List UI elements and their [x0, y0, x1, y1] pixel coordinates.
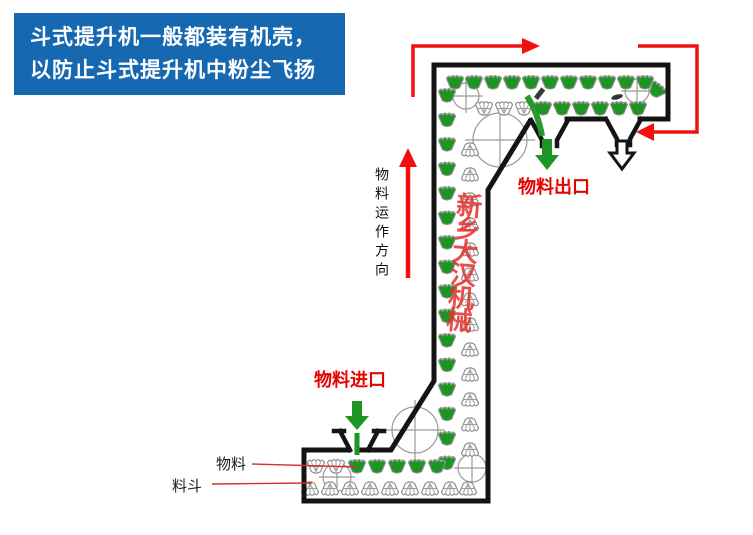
empty-bucket-icon [462, 393, 479, 406]
full-bucket-icon [447, 76, 464, 89]
full-bucket-icon [561, 76, 578, 89]
caption-line-1: 斗式提升机一般都装有机壳， [30, 21, 345, 54]
inlet-arrow-down-icon [345, 401, 369, 430]
full-bucket-icon [592, 102, 609, 115]
full-bucket-icon [439, 432, 456, 445]
material-outlet-label: 物料出口 [518, 173, 590, 199]
full-bucket-icon [466, 76, 483, 89]
empty-bucket-icon [322, 482, 339, 495]
empty-bucket-icon [442, 482, 459, 495]
empty-bucket-icon [462, 443, 479, 456]
material-label: 物料 [216, 453, 246, 474]
empty-bucket-icon [402, 482, 419, 495]
flow-direction-label: 物料运作方向 [372, 167, 392, 292]
bucket-elevator-figure: 斗式提升机一般都装有机壳， 以防止斗式提升机中粉尘飞扬 物料运作方向 新乡大汉机… [0, 0, 753, 535]
empty-bucket-icon [362, 482, 379, 495]
empty-bucket-icon [462, 368, 479, 381]
empty-bucket-icon [462, 418, 479, 431]
full-bucket-icon [439, 89, 456, 102]
material-inlet-label: 物料进口 [314, 366, 386, 392]
full-bucket-icon [630, 102, 647, 115]
empty-bucket-icon [462, 168, 479, 181]
full-bucket-icon [573, 102, 590, 115]
empty-bucket-icon [342, 482, 359, 495]
full-bucket-icon [542, 76, 559, 89]
empty-bucket-icon [422, 482, 439, 495]
full-bucket-icon [439, 383, 456, 396]
full-bucket-icon [409, 460, 426, 473]
full-bucket-icon [439, 358, 456, 371]
bucket-label: 料斗 [172, 475, 202, 496]
empty-bucket-icon [476, 102, 493, 115]
full-bucket-icon [429, 460, 446, 473]
full-bucket-icon [369, 460, 386, 473]
full-bucket-icon [439, 162, 456, 175]
takeup-bolt-mark [611, 93, 624, 101]
full-bucket-icon [439, 407, 456, 420]
stream-clip-mark [534, 87, 545, 100]
empty-bucket-icon [462, 143, 479, 156]
full-bucket-icon [554, 102, 571, 115]
caption-line-2: 以防止斗式提升机中粉尘飞扬 [30, 54, 345, 87]
full-bucket-icon [618, 76, 635, 89]
bucket-chain [302, 76, 668, 496]
full-bucket-icon [439, 113, 456, 126]
empty-bucket-icon [460, 482, 477, 495]
empty-bucket-icon [382, 482, 399, 495]
full-bucket-icon [389, 460, 406, 473]
full-bucket-icon [523, 76, 540, 89]
full-bucket-icon [504, 76, 521, 89]
caption-banner: 斗式提升机一般都装有机壳， 以防止斗式提升机中粉尘飞扬 [14, 13, 345, 95]
full-bucket-icon [599, 76, 616, 89]
full-bucket-icon [580, 76, 597, 89]
full-bucket-icon [611, 102, 628, 115]
full-bucket-icon [485, 76, 502, 89]
full-bucket-icon [439, 138, 456, 151]
